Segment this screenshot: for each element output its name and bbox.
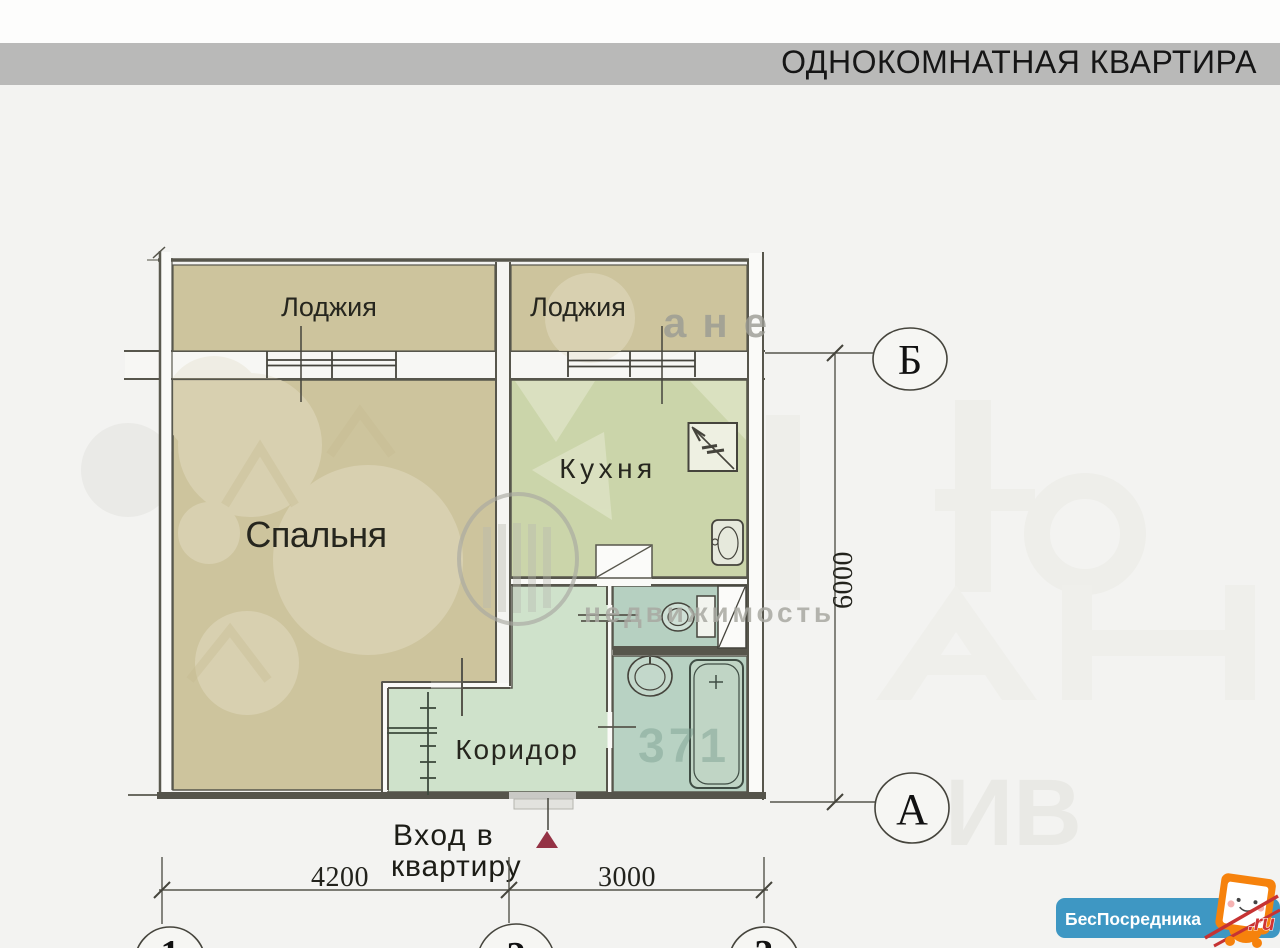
svg-text:Б: Б — [898, 338, 922, 384]
svg-text:Спальня: Спальня — [245, 514, 386, 555]
svg-text:недвижимость: недвижимость — [584, 597, 835, 628]
svg-text:ОДНОКОМНАТНАЯ КВАРТИРА: ОДНОКОМНАТНАЯ КВАРТИРА — [781, 44, 1257, 80]
svg-text:3000: 3000 — [598, 862, 656, 893]
svg-text:3: 3 — [755, 933, 774, 948]
svg-text:Лоджия: Лоджия — [530, 292, 626, 322]
svg-text:Кухня: Кухня — [559, 453, 656, 484]
svg-text:ИВ: ИВ — [945, 760, 1082, 866]
svg-text:1: 1 — [161, 933, 180, 948]
svg-text:А: А — [896, 785, 928, 834]
svg-text:квартиру: квартиру — [391, 850, 521, 883]
svg-text:ане: ане — [663, 299, 783, 346]
svg-text:4200: 4200 — [311, 862, 369, 893]
svg-text:2: 2 — [507, 935, 526, 948]
svg-text:371: 371 — [638, 720, 730, 773]
svg-text:Коридор: Коридор — [455, 734, 578, 765]
svg-text:БесПосредника: БесПосредника — [1065, 909, 1201, 929]
svg-text:.ru: .ru — [1248, 912, 1275, 935]
svg-text:Вход в: Вход в — [393, 819, 494, 852]
svg-text:Лоджия: Лоджия — [281, 292, 377, 322]
svg-text:6000: 6000 — [828, 551, 859, 609]
